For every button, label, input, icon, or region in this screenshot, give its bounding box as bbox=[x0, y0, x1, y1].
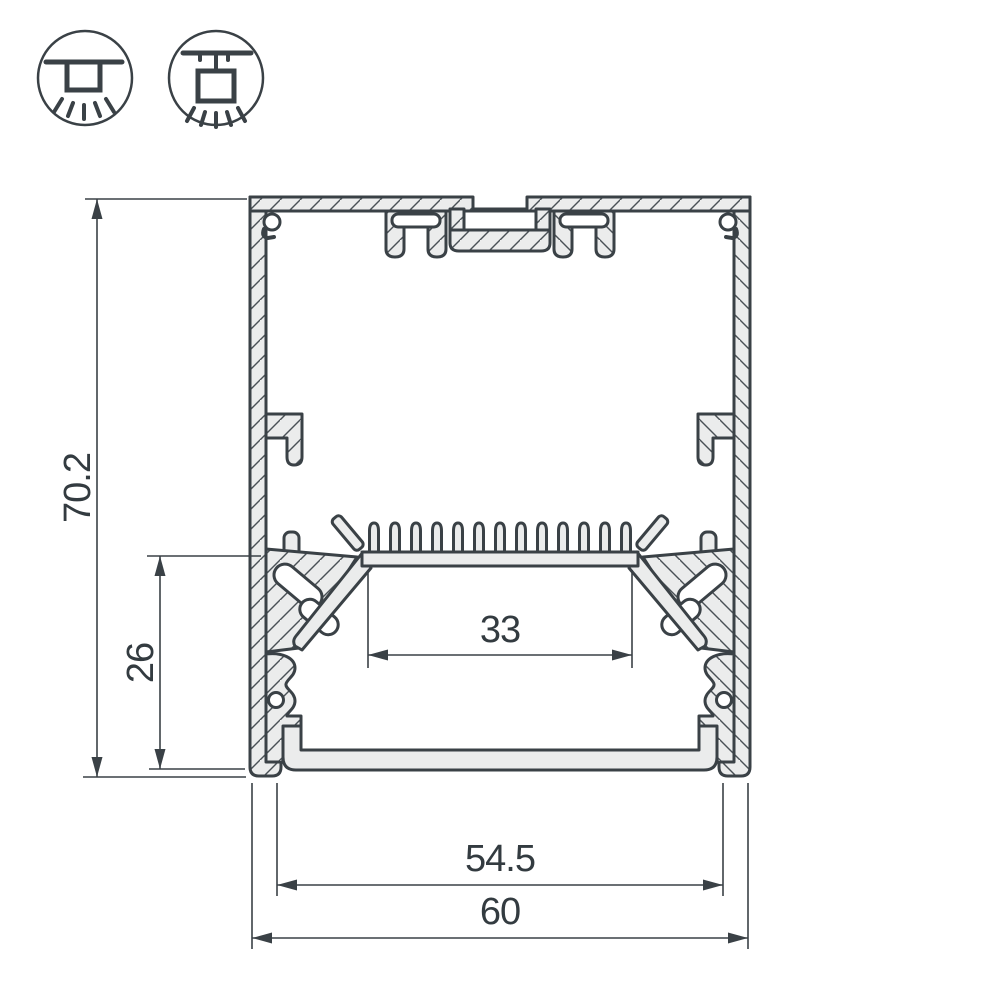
dimension-70-2: 70.2 bbox=[57, 199, 247, 777]
dimension-26: 26 bbox=[120, 556, 261, 769]
surface-mount-luminaire-icon bbox=[38, 31, 132, 125]
fixture-box bbox=[67, 62, 100, 90]
dimension-label-platform-width: 33 bbox=[480, 609, 520, 651]
dimension-label-overall-height: 70.2 bbox=[57, 453, 99, 523]
light-rays bbox=[54, 99, 114, 119]
suspension-bridge bbox=[450, 230, 550, 251]
technical-drawing-page: 70.2 26 33 54.5 60 bbox=[0, 0, 1000, 1000]
profile-cross-section-drawing: 70.2 26 33 54.5 60 bbox=[0, 0, 1000, 1000]
profile-body bbox=[250, 197, 750, 776]
top-flange bbox=[250, 197, 750, 211]
dimension-54-5: 54.5 bbox=[277, 783, 723, 896]
dimension-label-overall-width: 60 bbox=[480, 891, 520, 933]
diffuser bbox=[283, 726, 717, 770]
heatsink-fins bbox=[370, 523, 631, 555]
light-rays bbox=[187, 108, 245, 127]
dimension-label-cavity-height: 26 bbox=[120, 643, 162, 683]
fixture-box bbox=[198, 71, 234, 101]
led-platform bbox=[362, 552, 638, 566]
dimension-label-diffuser-width: 54.5 bbox=[465, 838, 535, 880]
pendant-mount-luminaire-icon bbox=[169, 31, 263, 127]
icon-circle bbox=[169, 31, 263, 125]
dimension-33: 33 bbox=[368, 570, 632, 668]
